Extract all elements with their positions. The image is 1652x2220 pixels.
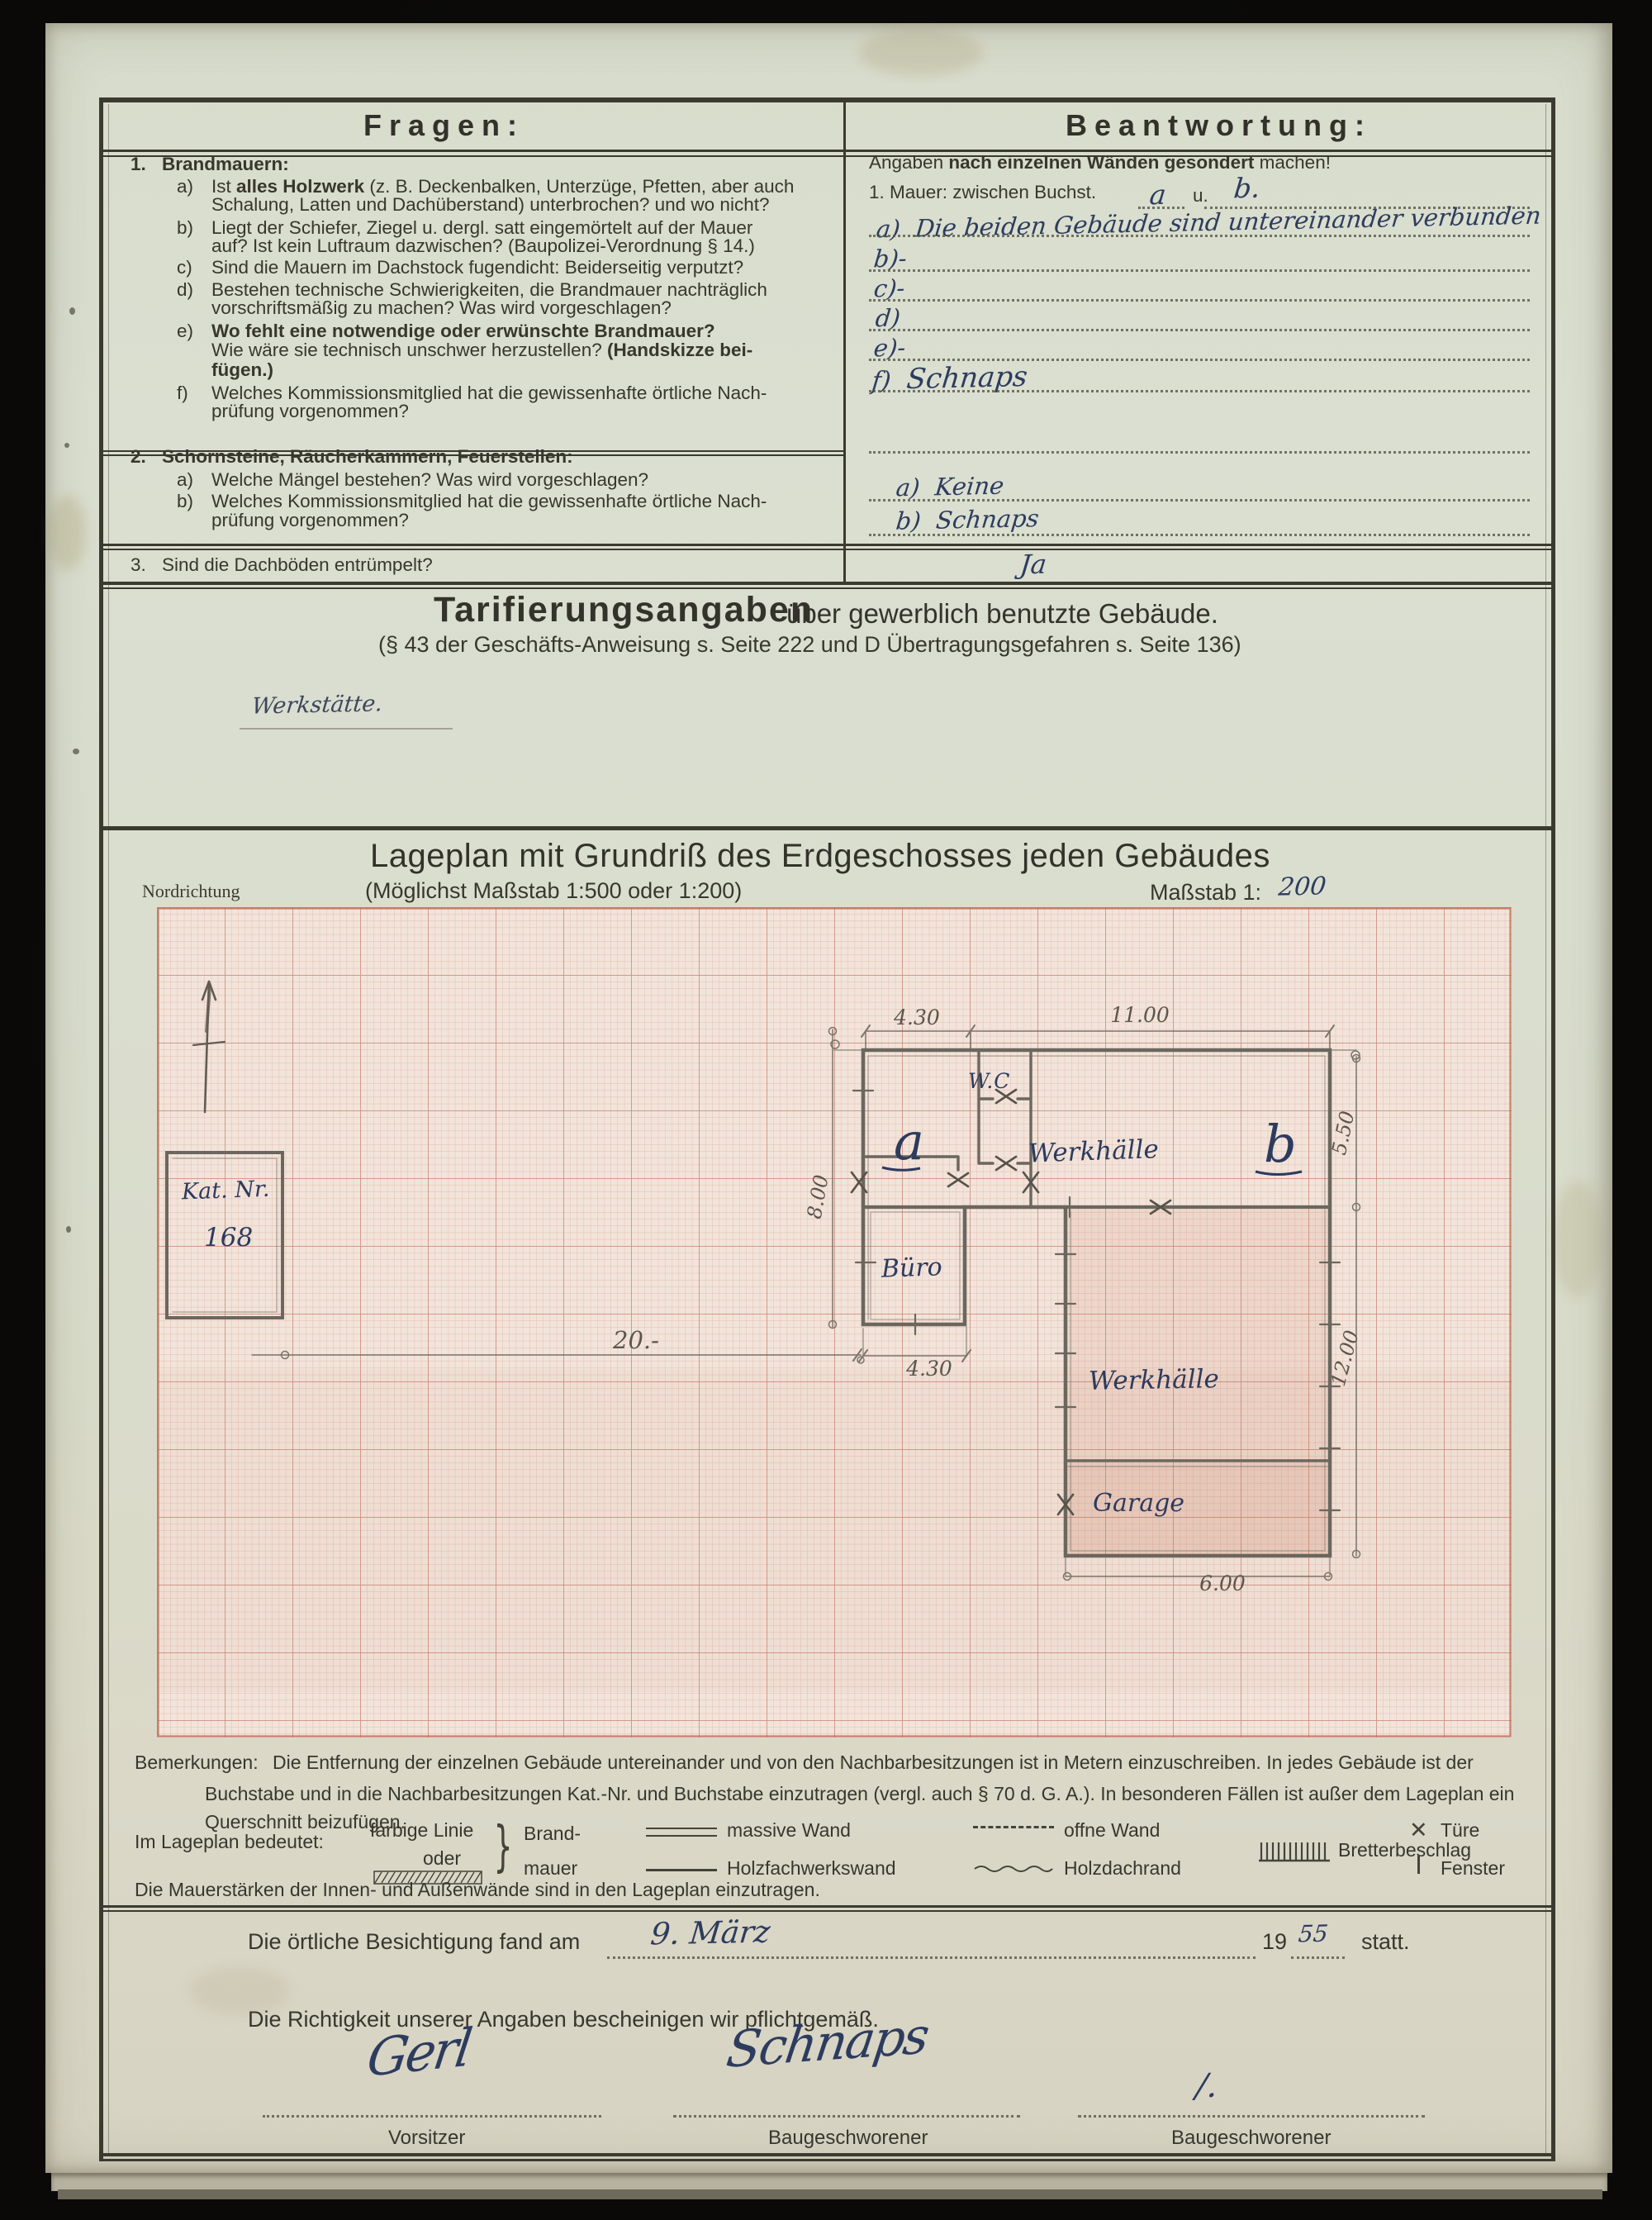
q1c-letter: c) bbox=[177, 256, 192, 278]
frame-right bbox=[1551, 97, 1555, 2161]
frame-top bbox=[99, 97, 1555, 102]
paper-stack-edge-2 bbox=[58, 2189, 1602, 2199]
q2b-line2: prüfung vorgenommen? bbox=[211, 509, 409, 531]
mauerstaerken-note: Die Mauerstärken der Innen- und Außenwän… bbox=[135, 1879, 820, 1902]
paper-speck bbox=[66, 1226, 71, 1233]
answer-line-e bbox=[869, 359, 1530, 361]
section2-divider-b bbox=[103, 549, 1551, 550]
brace-icon: } bbox=[493, 1814, 512, 1878]
besichtigung-text: Die örtliche Besichtigung fand am bbox=[248, 1928, 580, 1955]
q1f-letter: f) bbox=[177, 382, 188, 404]
werkhalle-label: Werkhälle bbox=[1089, 1364, 1220, 1396]
q2-number: 2. bbox=[131, 445, 146, 468]
answer-line-c bbox=[869, 299, 1530, 302]
q1a-letter: a) bbox=[177, 175, 193, 197]
q2-title: Schornsteine, Räucherkammern, Feuerstell… bbox=[162, 445, 573, 468]
q1-title: Brandmauern: bbox=[162, 153, 289, 175]
frame-left-inner bbox=[108, 104, 109, 2155]
signature-line-2 bbox=[673, 2115, 1020, 2118]
tarif-note-underline bbox=[240, 728, 453, 730]
q2a-line1: Welche Mängel bestehen? Was wird vorgesc… bbox=[211, 468, 648, 491]
bemerkungen-line1: Die Entfernung der einzelnen Gebäude unt… bbox=[273, 1752, 1474, 1775]
wc-label: W.C bbox=[968, 1069, 1010, 1093]
tarif-title: Tarifierungsangaben bbox=[434, 590, 814, 630]
answer-2b-text: Schnaps bbox=[935, 504, 1041, 535]
date-handwriting: 9. März bbox=[649, 1913, 772, 1951]
statt-text: statt. bbox=[1361, 1928, 1410, 1955]
answer-2a-handwriting: a) Keine bbox=[895, 472, 1005, 502]
signature-line-3 bbox=[1078, 2115, 1425, 2118]
q1a-line2: Schalung, Latten und Dachüberstand) unte… bbox=[211, 193, 769, 216]
q2a-letter: a) bbox=[177, 468, 193, 491]
holzfachwerkswand-icon bbox=[646, 1869, 717, 1871]
q1e-letter: e) bbox=[177, 320, 193, 342]
legend-brand1: Brand- bbox=[524, 1823, 581, 1846]
label-baugeschworener-1: Baugeschworener bbox=[768, 2127, 928, 2151]
fenster-icon bbox=[1417, 1856, 1420, 1874]
scale-label: Maßstab 1: bbox=[1150, 879, 1261, 906]
legend-holzfachwerkswand: Holzfachwerkswand bbox=[727, 1857, 896, 1880]
signature-baugeschworener-2: /. bbox=[1194, 2067, 1220, 2106]
tarif-bottom-rule bbox=[103, 826, 1551, 830]
north-label: Nordrichtung bbox=[142, 881, 240, 902]
legend-holzdachrand: Holzdachrand bbox=[1064, 1857, 1181, 1880]
plan-subheading: (Möglichst Maßstab 1:500 oder 1:200) bbox=[365, 877, 742, 904]
paper-stack-edge bbox=[51, 2173, 1607, 2191]
massive-wand-icon bbox=[646, 1828, 717, 1837]
offne-wand-icon bbox=[973, 1826, 1054, 1828]
room-label-b: b bbox=[1264, 1114, 1297, 1174]
paper-stain bbox=[48, 496, 86, 570]
plan-heading: Lageplan mit Grundriß des Erdgeschosses … bbox=[370, 836, 1270, 876]
paper-stain bbox=[1553, 1181, 1602, 1297]
answer-2b-handwriting: b) Schnaps bbox=[895, 504, 1040, 535]
q1d-line2: vorschriftsmäßig zu machen? Was wird vor… bbox=[211, 297, 672, 319]
q1d-letter: d) bbox=[177, 278, 193, 301]
paper-speck bbox=[69, 307, 75, 315]
mauer-b-handwriting: b. bbox=[1232, 172, 1262, 205]
answer-line-2a bbox=[869, 499, 1530, 502]
label-vorsitzer: Vorsitzer bbox=[388, 2127, 465, 2151]
frame-left bbox=[99, 97, 103, 2161]
frame-right-inner bbox=[1545, 104, 1546, 2155]
tarif-note-handwriting: Werkstätte. bbox=[250, 691, 383, 719]
dim-1100: 11.00 bbox=[1110, 1003, 1170, 1027]
legend-intro: Im Lageplan bedeutet: bbox=[135, 1831, 324, 1854]
fragen-header: Fragen: bbox=[363, 108, 525, 143]
kat-label-line2: 168 bbox=[204, 1223, 253, 1253]
year-handwriting: 55 bbox=[1297, 1920, 1329, 1948]
q3-text: Sind die Dachböden entrümpelt? bbox=[162, 554, 433, 576]
answer-2a-text: Keine bbox=[933, 472, 1005, 502]
answer-a-label: a) bbox=[875, 215, 901, 244]
answer-line-a bbox=[869, 235, 1530, 237]
dim-430-top: 4.30 bbox=[893, 1005, 940, 1029]
q2b-letter: b) bbox=[177, 490, 193, 512]
answers-intro-bold: nach einzelnen Wänden gesondert bbox=[948, 152, 1254, 173]
kat-label-line1: Kat. Nr. bbox=[180, 1177, 269, 1205]
answer-3-handwriting: Ja bbox=[1018, 549, 1048, 581]
q1b-line2: auf? Ist kein Luftraum dazwischen? (Baup… bbox=[211, 235, 755, 257]
scanned-form-page: Fragen: Beantwortung: 1. Brandmauern: a)… bbox=[0, 0, 1652, 2220]
header-rule-2 bbox=[103, 155, 1551, 157]
legend-brand2: mauer bbox=[524, 1857, 577, 1880]
year-printed: 19 bbox=[1262, 1928, 1287, 1955]
mauer-line: 1. Mauer: zwischen Buchst. bbox=[869, 181, 1096, 203]
column-divider bbox=[843, 97, 846, 583]
hall-b-label: Werkhälle bbox=[1028, 1134, 1159, 1168]
answer-2b-label: b) bbox=[895, 506, 922, 535]
plan-bottom-rule-a bbox=[103, 1905, 1551, 1908]
besichtigung-date-line bbox=[607, 1956, 1256, 1959]
q3-number: 3. bbox=[131, 554, 146, 576]
bemerkungen-line2: Buchstabe und in die Nachbarbesitzungen … bbox=[205, 1783, 1514, 1806]
legend-offne-wand: offne Wand bbox=[1064, 1819, 1160, 1842]
frame-bottom-outer bbox=[99, 2153, 1555, 2156]
answer-2a-label: a) bbox=[895, 473, 921, 502]
answer-line-blank bbox=[869, 451, 1530, 454]
buero-label: Büro bbox=[880, 1253, 942, 1284]
section3-divider-a bbox=[103, 582, 1551, 585]
floor-plan: a b W.C Werkhälle Büro Werkhälle Garage … bbox=[157, 907, 1512, 1737]
scale-value-handwriting: 200 bbox=[1277, 872, 1327, 901]
mauer-u: u. bbox=[1193, 184, 1208, 207]
dim-20: 20.- bbox=[612, 1326, 659, 1354]
legend-farbige-linie: farbige Linie bbox=[370, 1819, 473, 1842]
paper-speck bbox=[73, 749, 79, 754]
section3-divider-b bbox=[103, 587, 1551, 589]
answers-intro-post: machen! bbox=[1254, 152, 1331, 173]
tarif-title-rest: über gewerblich benutzte Gebäude. bbox=[786, 598, 1218, 630]
answer-line-d bbox=[869, 329, 1530, 331]
answers-intro: Angaben nach einzelnen Wänden gesondert … bbox=[869, 151, 1331, 174]
q1c-line1: Sind die Mauern im Dachstock fugendicht:… bbox=[211, 256, 743, 278]
bretterbeschlag-icon bbox=[1257, 1839, 1332, 1862]
q1e-line3: fügen.) bbox=[211, 359, 273, 381]
garage-label: Garage bbox=[1093, 1489, 1184, 1518]
year-dotted-line bbox=[1291, 1956, 1345, 1959]
room-label-a: a bbox=[894, 1111, 924, 1172]
legend-tuere: Türe bbox=[1441, 1819, 1479, 1842]
answer-line-b bbox=[869, 269, 1530, 272]
bemerkungen-label: Bemerkungen: bbox=[135, 1752, 259, 1775]
paper-stain bbox=[859, 30, 983, 75]
q1-number: 1. bbox=[131, 153, 146, 175]
tuere-x-icon: ✕ bbox=[1409, 1818, 1428, 1843]
dim-600: 6.00 bbox=[1199, 1571, 1246, 1595]
beantwortung-header: Beantwortung: bbox=[1066, 108, 1372, 143]
dim-430-buero: 4.30 bbox=[905, 1357, 952, 1381]
frame-bottom-inner bbox=[99, 2159, 1555, 2161]
tarif-subtitle: (§ 43 der Geschäfts-Anweisung s. Seite 2… bbox=[378, 631, 1241, 658]
holzdachrand-icon bbox=[973, 1862, 1054, 1875]
legend-fenster: Fenster bbox=[1441, 1857, 1505, 1880]
section2-divider-a bbox=[103, 544, 1551, 546]
q1b-letter: b) bbox=[177, 216, 193, 239]
signature-line-1 bbox=[263, 2115, 601, 2118]
header-rule-1 bbox=[103, 150, 1551, 152]
q1e-line2: Wie wäre sie technisch unschwer herzuste… bbox=[211, 339, 752, 361]
q1e-line2-bold: (Handskizze bei- bbox=[607, 340, 752, 360]
q1f-line2: prüfung vorgenommen? bbox=[211, 400, 409, 422]
legend-massive-wand: massive Wand bbox=[727, 1819, 851, 1842]
signature-vorsitzer: Gerl bbox=[363, 2017, 473, 2089]
answer-line-2b bbox=[869, 534, 1530, 536]
answer-line-f bbox=[869, 390, 1530, 392]
paper-speck bbox=[64, 443, 69, 448]
q1e-line2-plain: Wie wäre sie technisch unschwer herzuste… bbox=[211, 340, 607, 360]
label-baugeschworener-2: Baugeschworener bbox=[1171, 2127, 1331, 2151]
answers-intro-pre: Angaben bbox=[869, 152, 948, 173]
legend-oder: oder bbox=[423, 1847, 461, 1871]
plan-bottom-rule-b bbox=[103, 1910, 1551, 1912]
